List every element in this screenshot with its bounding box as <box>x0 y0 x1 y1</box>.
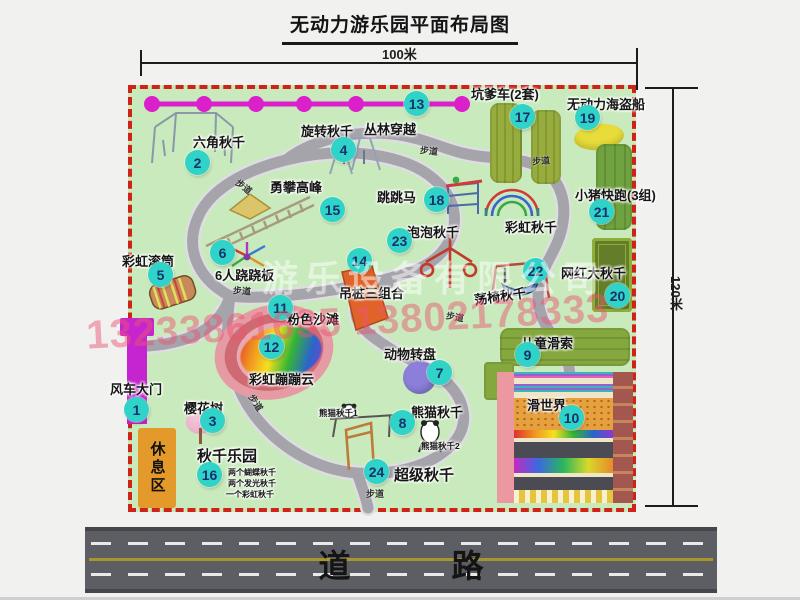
label-jungle-crossing: 丛林穿越 <box>364 119 416 138</box>
marker-13: 13 <box>404 91 429 116</box>
slide-rainbow-stripe <box>514 430 613 438</box>
dimension-height-line <box>672 88 674 507</box>
page-title: 无动力游乐园平面布局图 <box>0 10 800 45</box>
label-windmill-gate: 风车大门 <box>110 379 162 398</box>
marker-17: 17 <box>510 104 535 129</box>
label-climbing-peak: 勇攀高峰 <box>270 177 322 196</box>
label-rainbow-cloud: 彩虹蹦蹦云 <box>249 369 314 388</box>
slide-dark-block <box>514 442 613 458</box>
marker-18: 18 <box>424 187 449 212</box>
swing-park-note-2: 两个发光秋千 <box>228 478 276 489</box>
marker-10: 10 <box>559 405 584 430</box>
label-bubble-swing: 泡泡秋千 <box>407 222 459 241</box>
marker-15: 15 <box>320 197 345 222</box>
marker-9: 9 <box>515 342 540 367</box>
marker-24: 24 <box>364 459 389 484</box>
marker-5: 5 <box>148 262 173 287</box>
slide-rainbow-block <box>514 458 613 473</box>
slide-world-right-strip <box>613 372 633 503</box>
label-panda-swing-2: 熊猫秋千2 <box>421 440 460 452</box>
marker-7: 7 <box>427 360 452 385</box>
dimension-width-tick-left <box>140 50 142 76</box>
label-pit-cart: 坑爹车(2套) <box>471 84 539 103</box>
label-super-swing: 超级秋千 <box>394 464 454 485</box>
walkway-tag: 步道 <box>532 153 551 167</box>
dimension-height-label: 120米 <box>666 276 685 311</box>
slide-world-zone <box>497 372 633 503</box>
road: 道 路 <box>85 527 717 593</box>
playground-plan-page: 无动力游乐园平面布局图 100米 120米 <box>0 0 800 600</box>
label-rainbow-swing: 彩虹秋千 <box>505 217 557 236</box>
label-jumping-horse: 跳跳马 <box>377 187 416 206</box>
dimension-width-tick-right <box>636 48 638 90</box>
rest-area-label: 休息区 <box>147 441 168 495</box>
dimension-width-line <box>141 62 638 64</box>
rest-area-box: 休息区 <box>138 428 176 508</box>
marker-6: 6 <box>210 240 235 265</box>
label-hex-swing: 六角秋千 <box>193 132 245 151</box>
label-panda-swing-1: 熊猫秋千1 <box>319 407 358 419</box>
pit-cart-track-2 <box>531 110 561 184</box>
slide-dark-block <box>514 477 613 490</box>
slide-yellow-wave <box>514 490 613 503</box>
label-panda-swing: 熊猫秋千 <box>411 402 463 421</box>
marker-3: 3 <box>200 408 225 433</box>
road-label: 道 路 <box>85 541 717 587</box>
marker-8: 8 <box>390 410 415 435</box>
swing-park-note-1: 两个蝴蝶秋千 <box>228 467 276 478</box>
slide-world-pink-strip <box>497 372 514 503</box>
marker-21: 21 <box>589 199 614 224</box>
walkway-tag: 步道 <box>419 143 438 158</box>
label-animal-carousel: 动物转盘 <box>384 344 436 363</box>
dimension-width-label: 100米 <box>382 44 417 63</box>
dimension-height-tick-bottom <box>645 505 698 507</box>
label-pig-run: 小猪快跑(3组) <box>575 185 656 204</box>
marker-19: 19 <box>575 105 600 130</box>
walkway-tag: 步道 <box>366 487 384 500</box>
dimension-height-tick-top <box>645 87 698 89</box>
sakura-tree-trunk <box>199 428 202 444</box>
walkway-tag: 步道 <box>233 283 252 297</box>
swing-park-note-3: 一个彩虹秋千 <box>226 489 274 500</box>
slide-stripe <box>514 384 613 392</box>
marker-1: 1 <box>124 397 149 422</box>
marker-4: 4 <box>331 137 356 162</box>
marker-2: 2 <box>185 150 210 175</box>
marker-16: 16 <box>197 462 222 487</box>
